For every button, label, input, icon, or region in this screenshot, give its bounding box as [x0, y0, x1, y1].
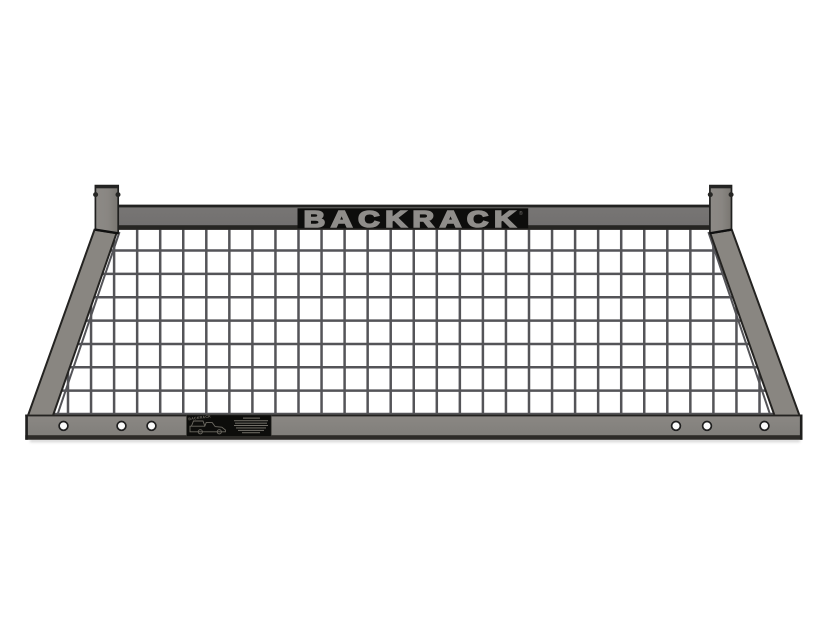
svg-text:BACKRACK: BACKRACK	[304, 207, 522, 233]
svg-text:®: ®	[519, 210, 523, 217]
